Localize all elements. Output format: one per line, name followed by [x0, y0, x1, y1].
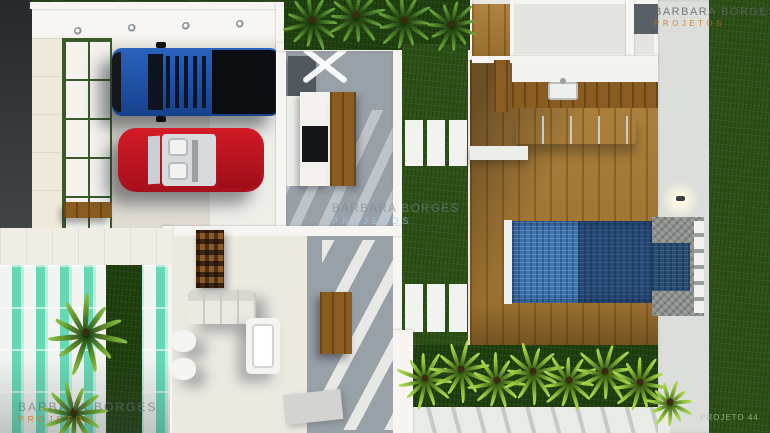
dining-table: [320, 292, 352, 354]
armchair: [170, 358, 196, 380]
pool-shadow: [578, 221, 656, 303]
palm-tree: [424, 0, 480, 52]
cooktop: [302, 126, 328, 162]
palm-trunk-center: [458, 366, 465, 373]
pool-edge: [504, 220, 512, 304]
truck-mirror: [156, 116, 166, 122]
garage-rear-cabinets: [0, 228, 172, 266]
ceiling-spotlight-icon: [74, 27, 82, 35]
barbecue-counter-top: [512, 63, 658, 82]
armchair: [170, 330, 196, 352]
palm-trunk-center: [667, 399, 674, 406]
kitchen-wood-cabinet: [330, 92, 356, 186]
garage-top-wall: [30, 2, 284, 9]
palm-trunk-center: [494, 377, 501, 384]
tv-slat-panel: [196, 230, 224, 288]
barbecue-sink: [548, 82, 578, 100]
entry-mat: [283, 389, 344, 425]
watermark-brand-text: BARBARA BORGES: [332, 203, 460, 216]
palm-trunk-center: [566, 377, 573, 384]
car-console: [192, 140, 198, 182]
truck-roof: [166, 56, 210, 108]
watermark-sub-text: PROJETOS: [18, 415, 157, 425]
garage-wood-bench: [64, 202, 112, 218]
palm-trunk-center: [449, 21, 456, 28]
upper-room-divider: [626, 0, 634, 58]
palm-trunk-center: [309, 17, 316, 24]
watermark-brand-text: BARBARA BORGES: [654, 6, 770, 19]
palm-trunk-center: [530, 368, 537, 375]
palm-trunk-center: [637, 379, 644, 386]
stepping-stone: [405, 120, 423, 166]
car-windshield: [148, 136, 160, 185]
pool-steps: [694, 221, 704, 313]
barbecue-side-column: [494, 60, 510, 112]
palm-trunk-center: [422, 375, 429, 382]
truck-windshield: [148, 54, 163, 110]
watermark-bottom-left: BARBARA BORGES PROJETOS: [18, 401, 157, 425]
watermark-sub-text: PROJETOS: [654, 19, 770, 28]
stepping-stone: [427, 284, 445, 332]
pool-spa-channel: [652, 243, 690, 291]
car-rear-deck: [218, 132, 260, 188]
stepping-stone: [449, 284, 467, 332]
left-exterior-wall: [0, 0, 32, 265]
sofa-backrest: [188, 290, 256, 301]
truck-bed-cover: [212, 50, 280, 114]
sink-faucet-icon: [560, 78, 566, 84]
watermark-brand-text: BARBARA BORGES: [18, 401, 157, 415]
palm-trunk-center: [83, 329, 90, 336]
lounger-cushion: [252, 324, 274, 368]
pickup-truck: [112, 48, 280, 116]
sports-car: [118, 128, 264, 192]
car-seat: [168, 162, 188, 180]
garage-side-cabinets: [32, 38, 62, 236]
tropical-plant: [646, 378, 694, 426]
right-lawn: [709, 0, 770, 433]
wall-sconce-icon: [676, 196, 685, 201]
truck-grille: [112, 52, 121, 112]
barbecue-counter-front: [512, 80, 658, 108]
project-number-text: PROJETO 44: [700, 413, 759, 422]
palm-trunk-center: [401, 17, 408, 24]
watermark-project-number: PROJETO 44: [700, 413, 759, 422]
watermark-center: BARBARA BORGES PROJETOS: [332, 203, 460, 227]
stepping-stone: [449, 120, 467, 166]
watermark-sub-text: PROJETOS: [332, 216, 460, 226]
palm-tree: [44, 290, 128, 374]
car-seat: [168, 138, 188, 156]
truck-mirror: [156, 42, 166, 48]
chaise-lounger: [246, 318, 280, 374]
stepping-stone: [427, 120, 445, 166]
stepping-stone: [405, 284, 423, 332]
ceiling-spotlight-icon: [128, 24, 136, 32]
watermark-top-right: BARBARA BORGES PROJETOS: [654, 6, 770, 28]
sofa: [188, 290, 256, 324]
car-cockpit: [162, 134, 216, 186]
ceiling-spotlight-icon: [182, 22, 190, 30]
palm-trunk-center: [353, 12, 360, 19]
deck-step-plank: [470, 146, 528, 160]
palm-trunk-center: [602, 368, 609, 375]
floorplan-render: BARBARA BORGES PROJETOS BARBARA BORGES P…: [0, 0, 770, 433]
outdoor-bench: [516, 116, 636, 144]
ceiling-spotlight-icon: [236, 20, 244, 28]
